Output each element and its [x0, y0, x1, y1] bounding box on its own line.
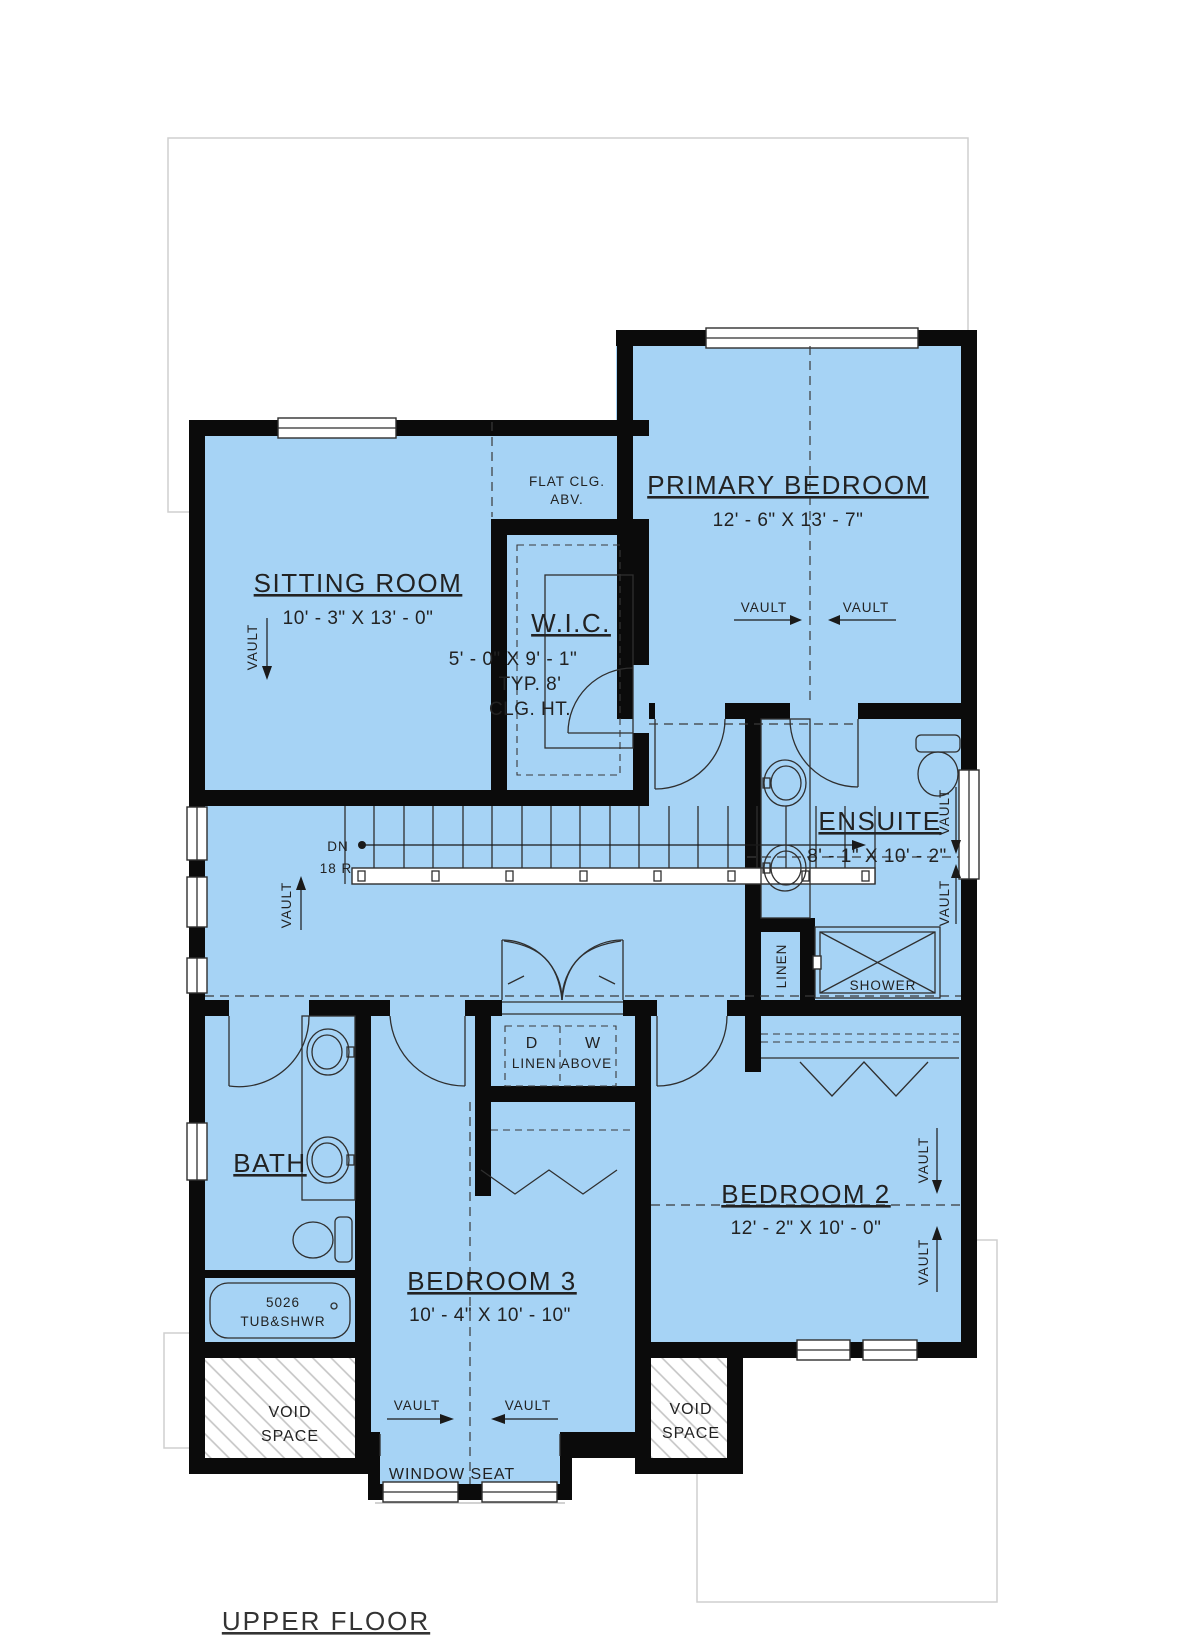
- wic-note-1: TYP. 8': [499, 674, 562, 695]
- bedroom2-label: BEDROOM 2: [721, 1179, 891, 1209]
- stair-railing: [352, 868, 875, 884]
- void-space-right-label-1: VOID: [669, 1401, 712, 1418]
- void-space-left-label-2: SPACE: [261, 1428, 319, 1445]
- wic-note-2: CLG. HT.: [489, 699, 571, 720]
- page-title: UPPER FLOOR: [222, 1606, 430, 1636]
- tub-type-label: TUB&SHWR: [240, 1314, 325, 1329]
- void-space-left-label-1: VOID: [268, 1404, 311, 1421]
- stair-riser-count: 18 R: [320, 861, 353, 876]
- vault-label: VAULT: [394, 1398, 441, 1413]
- sitting-room-label: SITTING ROOM: [254, 568, 463, 598]
- flat-ceiling-note-2: ABV.: [550, 492, 584, 507]
- floor-plan-page: VAULT VAULT VAULT VAULT VAULT VAULT VAUL…: [0, 0, 1200, 1647]
- washer-label: W: [585, 1035, 601, 1052]
- window-seat-label: WINDOW SEAT: [389, 1466, 515, 1483]
- bedroom3-label: BEDROOM 3: [407, 1266, 577, 1296]
- bedroom2-dims: 12' - 2" X 10' - 0": [731, 1218, 882, 1239]
- void-space-right-label-2: SPACE: [662, 1425, 720, 1442]
- stair-down-label: DN: [327, 839, 349, 854]
- bath-label: BATH: [233, 1148, 306, 1178]
- flat-ceiling-note-1: FLAT CLG.: [529, 474, 605, 489]
- vault-label: VAULT: [937, 880, 952, 927]
- ensuite-dims: 8' - 1" X 10' - 2": [807, 846, 947, 867]
- floor-plan-drawing: VAULT VAULT VAULT VAULT VAULT VAULT VAUL…: [0, 0, 1200, 1647]
- primary-bedroom-label: PRIMARY BEDROOM: [647, 470, 929, 500]
- linen-above-label: LINEN ABOVE: [512, 1056, 612, 1071]
- shower-label: SHOWER: [850, 978, 917, 993]
- tub-model-label: 5026: [266, 1295, 300, 1310]
- wic-label: W.I.C.: [531, 608, 611, 638]
- vault-label: VAULT: [916, 1239, 931, 1286]
- sitting-room-dims: 10' - 3" X 13' - 0": [283, 608, 434, 629]
- vault-label: VAULT: [505, 1398, 552, 1413]
- wic-dims: 5' - 0" X 9' - 1": [449, 649, 578, 670]
- bedroom3-dims: 10' - 4" X 10' - 10": [409, 1305, 571, 1326]
- vault-label: VAULT: [279, 882, 294, 929]
- ensuite-label: ENSUITE: [818, 806, 941, 836]
- vault-label: VAULT: [843, 600, 890, 615]
- vault-label: VAULT: [245, 624, 260, 671]
- dryer-label: D: [526, 1035, 539, 1052]
- vault-label: VAULT: [916, 1137, 931, 1184]
- shower-head: [813, 956, 821, 969]
- linen-label: LINEN: [774, 944, 789, 989]
- vault-label: VAULT: [741, 600, 788, 615]
- primary-bedroom-dims: 12' - 6" X 13' - 7": [713, 510, 864, 531]
